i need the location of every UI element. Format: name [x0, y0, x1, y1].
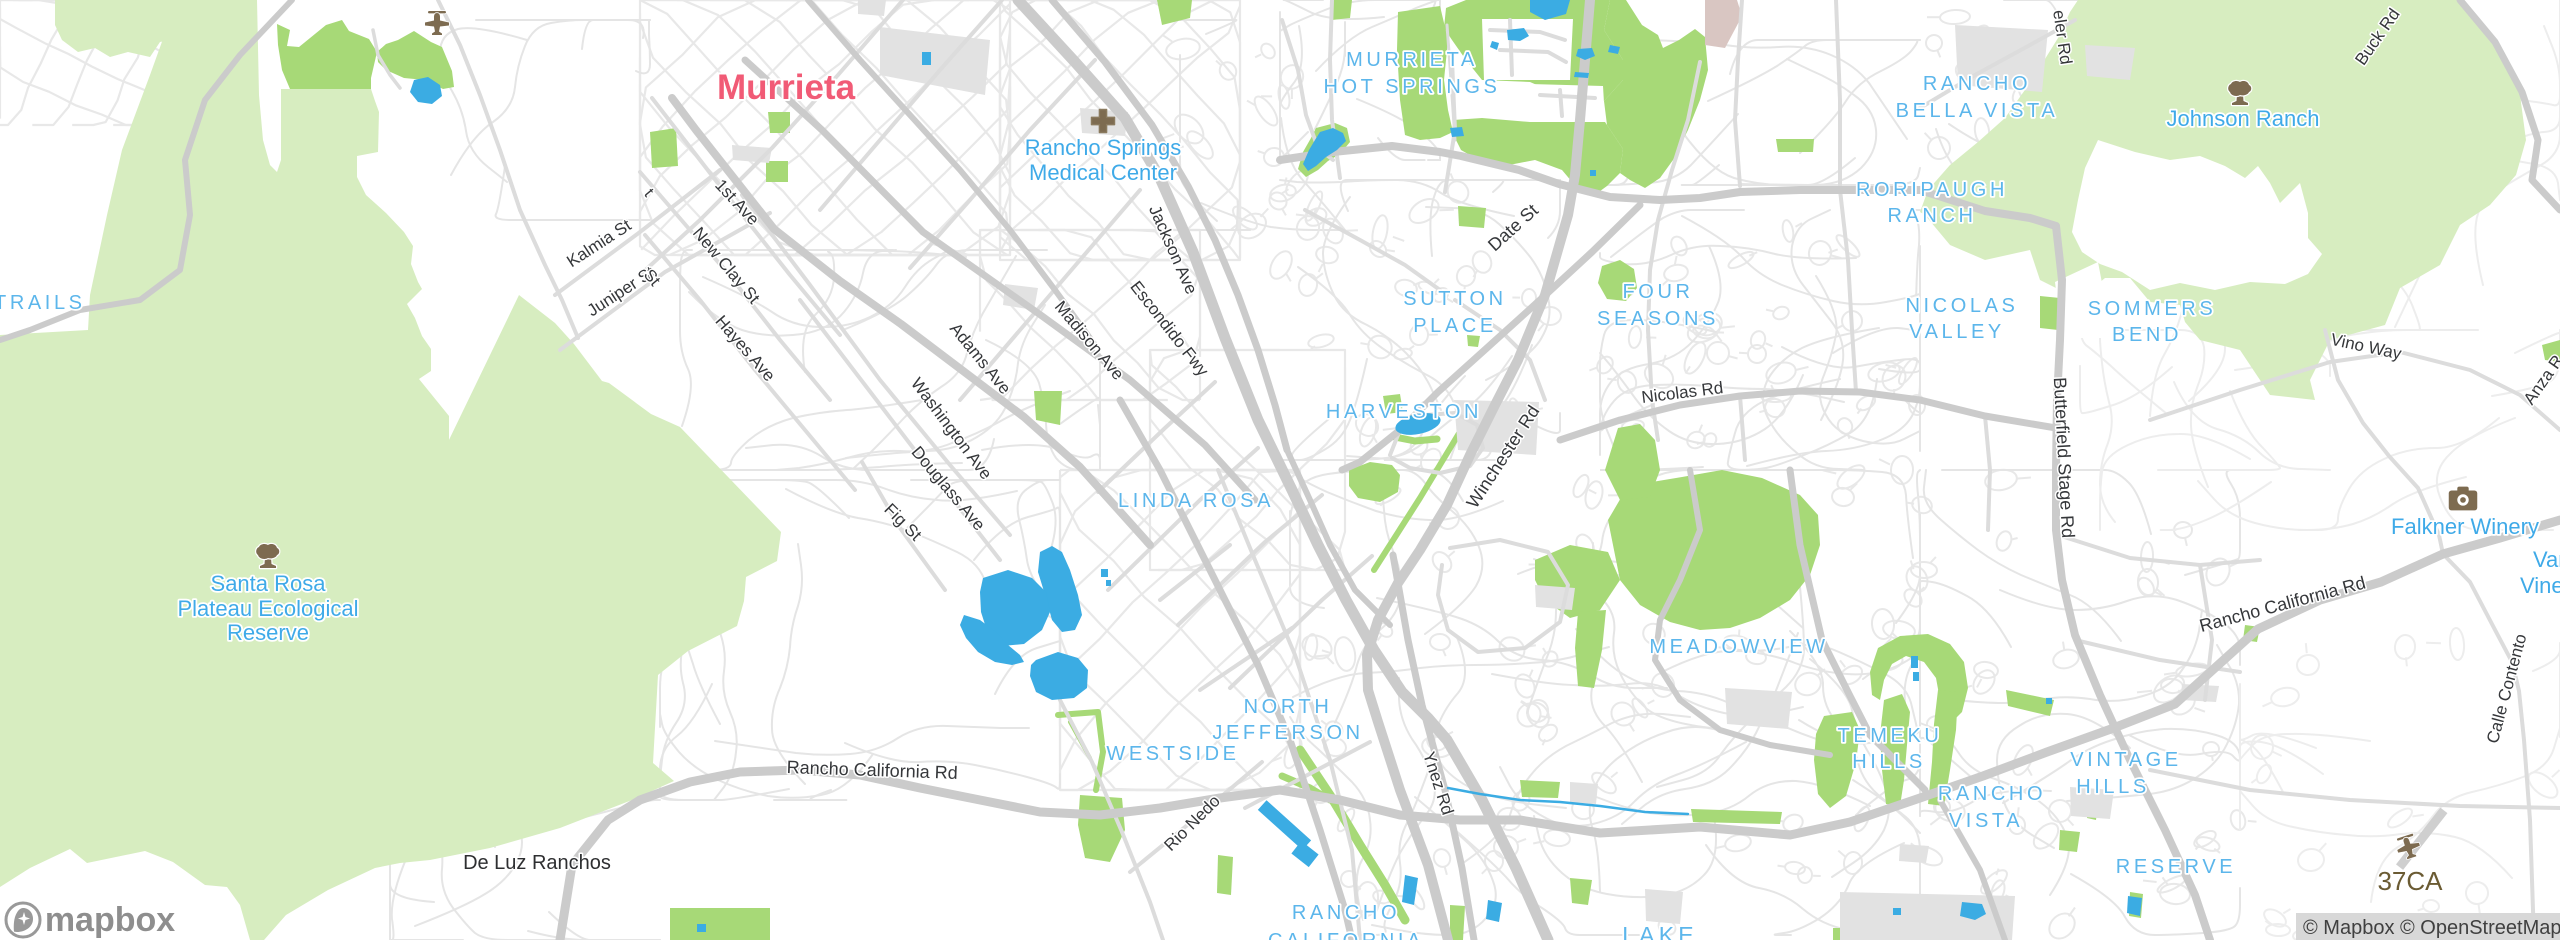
svg-text:Santa Rosa: Santa Rosa — [211, 571, 327, 596]
svg-text:mapbox: mapbox — [45, 901, 175, 939]
svg-text:BELLA VISTA: BELLA VISTA — [1896, 100, 2059, 122]
svg-text:RANCHO: RANCHO — [1938, 783, 2046, 805]
svg-text:VISTA: VISTA — [1949, 810, 2023, 832]
svg-text:JEFFERSON: JEFFERSON — [1212, 722, 1363, 744]
svg-text:Vineya: Vineya — [2520, 573, 2560, 598]
svg-text:Reserve: Reserve — [227, 620, 309, 645]
svg-text:NICOLAS: NICOLAS — [1905, 295, 2018, 317]
svg-text:© Mapbox © OpenStreetMap: © Mapbox © OpenStreetMap — [2303, 917, 2560, 939]
svg-text:MEADOWVIEW: MEADOWVIEW — [1649, 636, 1828, 658]
svg-text:LAKE: LAKE — [1622, 922, 1698, 940]
svg-text:SEASONS: SEASONS — [1597, 308, 1719, 330]
svg-text:Johnson Ranch: Johnson Ranch — [2167, 106, 2320, 131]
svg-text:CALIFORNIA: CALIFORNIA — [1268, 930, 1424, 940]
svg-text:WESTSIDE: WESTSIDE — [1106, 743, 1239, 765]
svg-text:MURRIETA: MURRIETA — [1346, 49, 1478, 71]
svg-text:RORIPAUGH: RORIPAUGH — [1856, 179, 2008, 201]
svg-text:HILLS: HILLS — [1852, 751, 1926, 773]
svg-text:HILLS: HILLS — [2076, 776, 2150, 798]
svg-text:LINDA ROSA: LINDA ROSA — [1118, 490, 1274, 512]
svg-text:37CA: 37CA — [2377, 866, 2443, 896]
svg-text:HOT SPRINGS: HOT SPRINGS — [1323, 76, 1500, 98]
svg-text:TRAILS: TRAILS — [0, 292, 86, 314]
svg-text:SUTTON: SUTTON — [1403, 288, 1506, 310]
svg-text:PLACE: PLACE — [1413, 315, 1497, 337]
svg-text:NORTH: NORTH — [1244, 696, 1333, 718]
svg-text:TEMEKU: TEMEKU — [1838, 725, 1943, 747]
svg-text:Medical Center: Medical Center — [1029, 160, 1177, 185]
svg-text:BEND: BEND — [2112, 324, 2182, 346]
svg-text:RANCHO: RANCHO — [1923, 73, 2031, 95]
svg-text:RANCH: RANCH — [1887, 205, 1976, 227]
svg-text:Murrieta: Murrieta — [717, 68, 856, 107]
svg-text:Van: Van — [2533, 547, 2560, 572]
svg-text:VALLEY: VALLEY — [1909, 321, 2005, 343]
svg-text:Plateau Ecological: Plateau Ecological — [177, 596, 358, 621]
svg-text:Falkner Winery: Falkner Winery — [2391, 514, 2539, 539]
svg-text:SOMMERS: SOMMERS — [2088, 298, 2217, 320]
svg-text:VINTAGE: VINTAGE — [2070, 749, 2182, 771]
svg-text:HARVESTON: HARVESTON — [1326, 401, 1482, 423]
svg-text:Rancho Springs: Rancho Springs — [1025, 135, 1182, 160]
svg-text:RESERVE: RESERVE — [2116, 856, 2236, 878]
svg-text:RANCHO: RANCHO — [1292, 902, 1400, 924]
svg-text:De Luz Ranchos: De Luz Ranchos — [463, 852, 611, 874]
svg-text:FOUR: FOUR — [1622, 281, 1693, 303]
